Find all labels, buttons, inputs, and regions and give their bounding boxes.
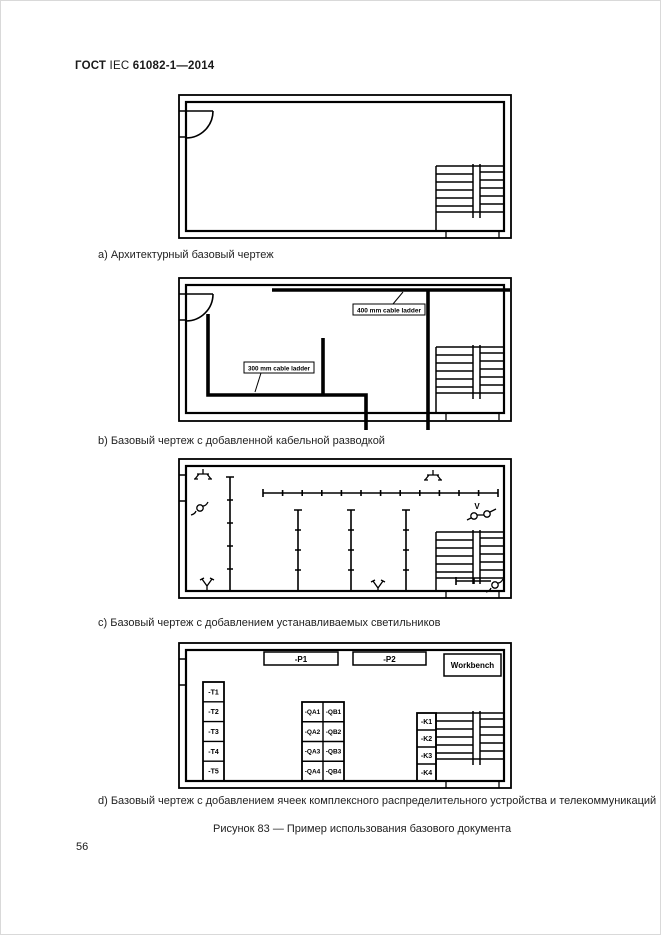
cell-label: -QA3 <box>305 749 321 756</box>
caption-b: b) Базовый чертеж с добавленной кабельно… <box>98 435 385 447</box>
cell-label: -K4 <box>421 770 432 777</box>
cell-label: -K3 <box>421 753 432 760</box>
cell-label: -T4 <box>208 749 219 756</box>
cell-label: -T3 <box>208 729 219 736</box>
cell-label: -K1 <box>421 719 432 726</box>
document-header: ГОСТ IEC 61082-1—2014 <box>75 60 214 72</box>
drawing-b-svg: 400 mm cable ladder 300 mm cable ladder <box>177 276 513 434</box>
drawing-a <box>177 93 513 243</box>
caption-c: c) Базовый чертеж с добавлением устанавл… <box>98 617 440 629</box>
cell-label: -K2 <box>421 736 432 743</box>
cable-ladder-400-label: 400 mm cable ladder <box>357 307 422 314</box>
drawing-a-svg <box>177 93 513 243</box>
stairs-symbol <box>436 711 504 765</box>
cell-label: -QB1 <box>326 709 342 716</box>
figure-caption: Рисунок 83 — Пример использования базово… <box>213 823 511 835</box>
standard-number: 61082-1—2014 <box>133 60 215 72</box>
stairs-symbol <box>436 164 504 218</box>
cell-label: -QA4 <box>305 768 321 775</box>
cell-label: -T1 <box>208 689 219 696</box>
panel-label: -P1 <box>295 655 308 664</box>
drawing-c-svg: V <box>177 457 513 604</box>
standard-code: ГОСТ <box>75 60 106 72</box>
ceiling-switch-icon <box>194 469 212 479</box>
stairs-symbol <box>436 530 504 584</box>
voltage-label: V <box>474 502 480 511</box>
panel-boxes <box>264 652 426 665</box>
page-number: 56 <box>76 841 88 853</box>
caption-d: d) Базовый чертеж с добавлением ячеек ко… <box>98 795 656 807</box>
standard-org: IEC <box>106 60 133 72</box>
cell-label: -T2 <box>208 709 219 716</box>
wall-outline <box>179 278 511 421</box>
wall-outline <box>179 459 511 598</box>
drawing-b: 400 mm cable ladder 300 mm cable ladder <box>177 276 513 434</box>
cell-label: -QB4 <box>326 768 342 775</box>
cell-label: -QB2 <box>326 729 342 736</box>
cable-ladder-300-label: 300 mm cable ladder <box>248 365 311 372</box>
cell-label: -T5 <box>208 769 219 776</box>
leader-line-300 <box>255 373 261 392</box>
panel-label: -P2 <box>383 655 396 664</box>
caption-a: a) Архитектурный базовый чертеж <box>98 249 274 261</box>
outlet-icon <box>200 578 214 590</box>
wall-switch-icon <box>191 502 208 515</box>
ceiling-switch-icon <box>424 470 442 480</box>
cell-label: -QB3 <box>326 749 342 756</box>
drawing-d-svg: -P1 -P2 Workbench -T1 -T2 -T3 -T4 -T5 -Q… <box>177 641 513 793</box>
cell-label: -QA2 <box>305 729 321 736</box>
leader-line-400 <box>393 292 403 304</box>
luminaire-rows <box>226 477 498 591</box>
cell-label: -QA1 <box>305 709 321 716</box>
door-symbol <box>179 111 213 138</box>
drawing-d: -P1 -P2 Workbench -T1 -T2 -T3 -T4 -T5 -Q… <box>177 641 513 793</box>
workbench-label: Workbench <box>451 661 495 670</box>
socket-chain-icon <box>467 509 496 520</box>
drawing-c: V <box>177 457 513 604</box>
stairs-symbol <box>436 345 504 399</box>
